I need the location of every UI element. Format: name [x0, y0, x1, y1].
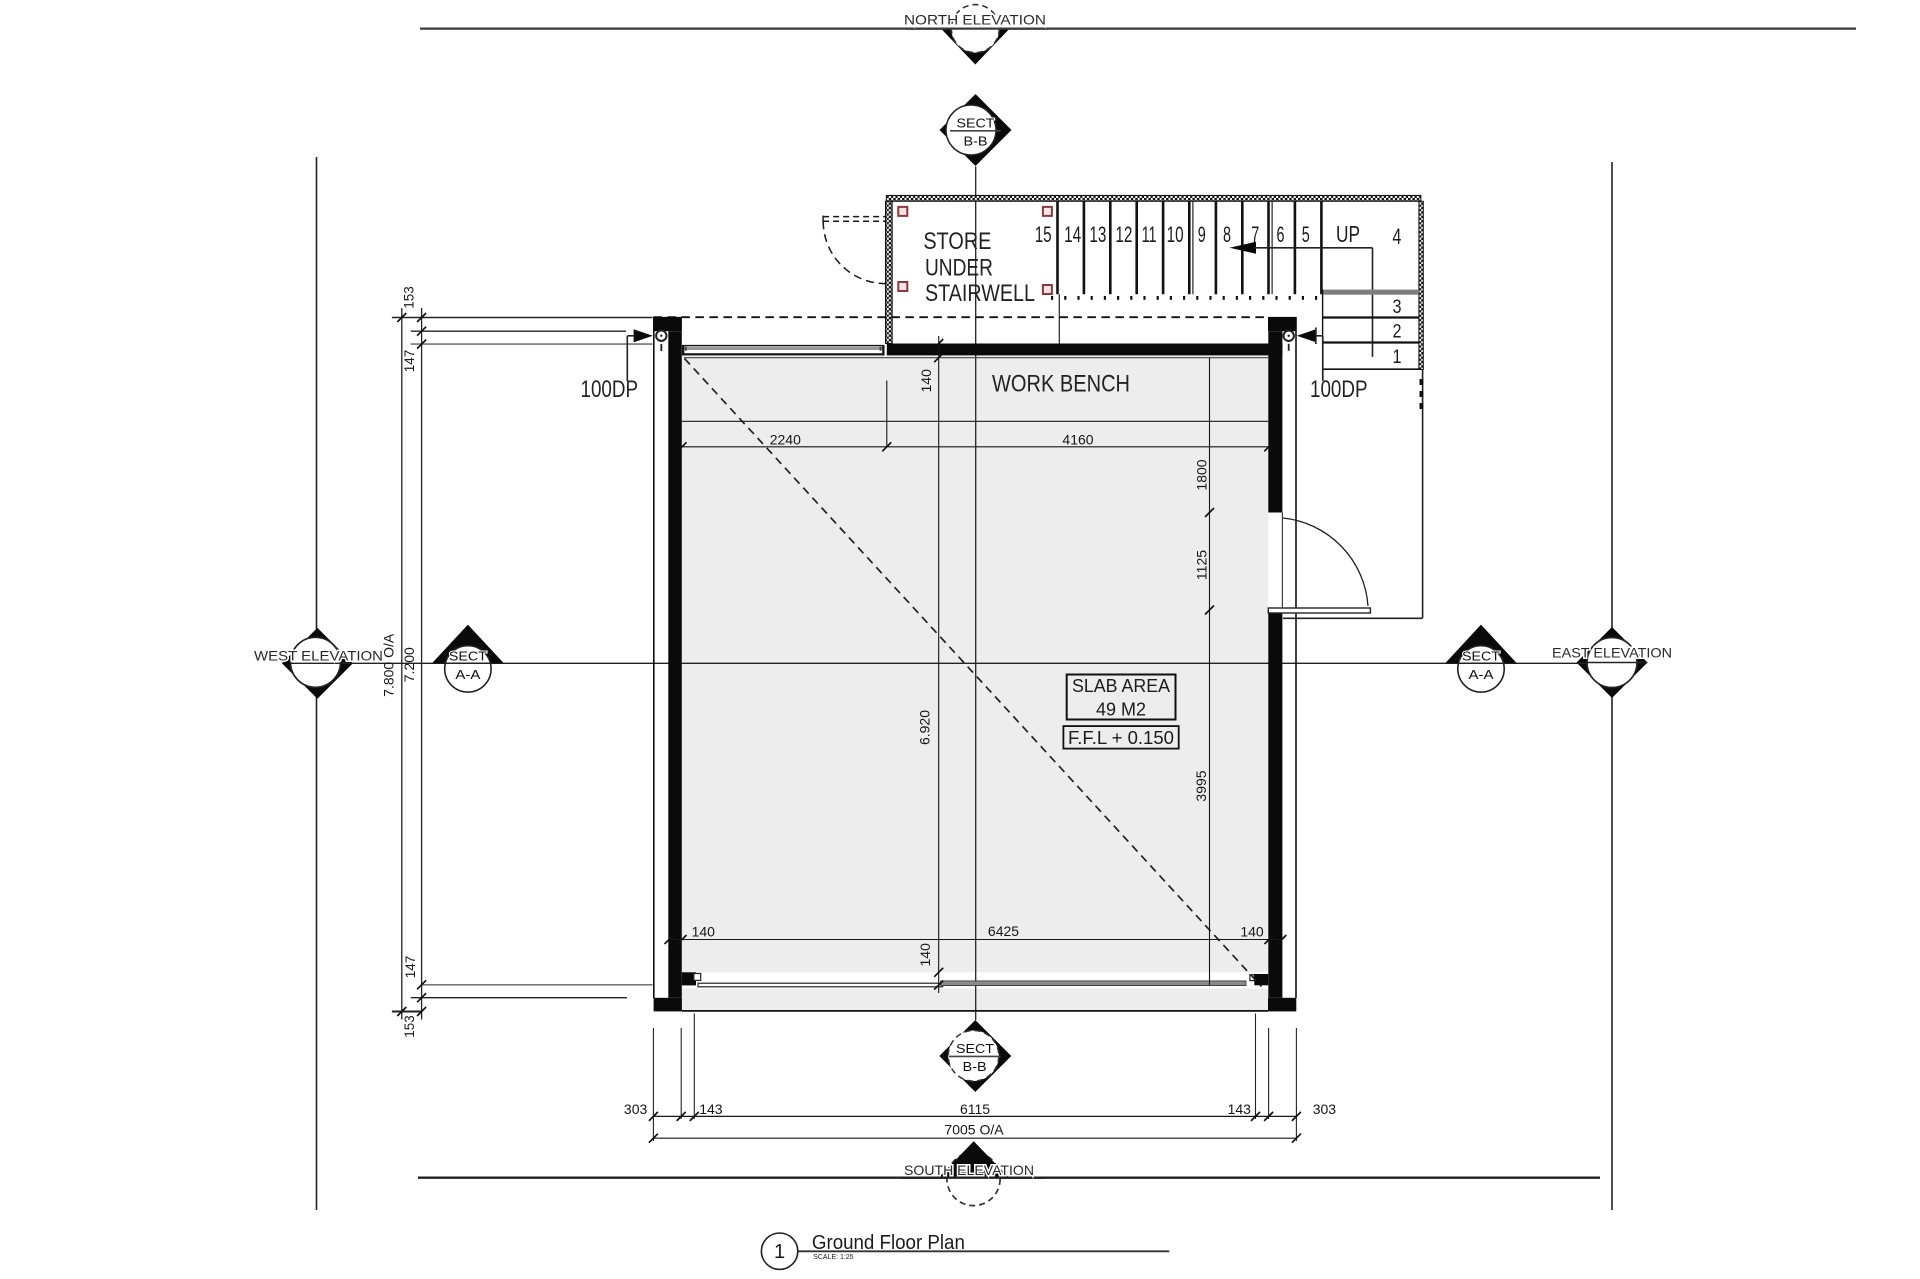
svg-text:F.F.L + 0.150: F.F.L + 0.150 — [1068, 728, 1174, 748]
svg-text:1: 1 — [774, 1241, 785, 1263]
svg-text:140: 140 — [917, 943, 933, 967]
svg-text:8: 8 — [1223, 222, 1231, 247]
svg-text:13: 13 — [1089, 222, 1106, 247]
svg-text:6115: 6115 — [960, 1101, 990, 1117]
svg-text:6425: 6425 — [988, 923, 1019, 939]
svg-text:SCALE: 1:25: SCALE: 1:25 — [813, 1254, 854, 1261]
svg-text:7.200: 7.200 — [401, 647, 417, 682]
svg-text:7.800 O/A: 7.800 O/A — [381, 633, 397, 697]
svg-text:100DP: 100DP — [581, 376, 639, 403]
svg-text:11: 11 — [1142, 222, 1157, 247]
svg-text:UP: UP — [1336, 221, 1360, 247]
svg-text:SLAB AREA: SLAB AREA — [1072, 676, 1170, 696]
svg-text:49 M2: 49 M2 — [1096, 699, 1146, 719]
svg-text:WEST ELEVATION: WEST ELEVATION — [254, 648, 383, 664]
svg-text:100DP: 100DP — [1310, 376, 1368, 403]
svg-text:A-A: A-A — [455, 667, 480, 682]
svg-text:10: 10 — [1167, 222, 1184, 247]
svg-text:EAST ELEVATION: EAST ELEVATION — [1552, 645, 1672, 661]
svg-text:140: 140 — [1240, 923, 1264, 939]
svg-text:3: 3 — [1393, 297, 1402, 318]
svg-text:147: 147 — [403, 956, 418, 979]
svg-text:4160: 4160 — [1062, 432, 1093, 448]
svg-text:14: 14 — [1064, 222, 1081, 247]
svg-text:SECT: SECT — [1462, 648, 1500, 663]
svg-text:STORE: STORE — [923, 228, 991, 255]
svg-text:140: 140 — [918, 369, 934, 393]
svg-text:1800: 1800 — [1194, 459, 1210, 490]
svg-text:SOUTH ELEVATION: SOUTH ELEVATION — [904, 1162, 1034, 1178]
svg-text:12: 12 — [1115, 222, 1132, 247]
svg-text:15: 15 — [1035, 222, 1052, 247]
svg-text:B-B: B-B — [964, 133, 988, 148]
svg-text:303: 303 — [1313, 1101, 1337, 1117]
svg-text:A-A: A-A — [1469, 667, 1494, 682]
svg-text:9: 9 — [1198, 222, 1206, 247]
svg-text:7005 O/A: 7005 O/A — [944, 1122, 1004, 1138]
svg-text:NORTH ELEVATION: NORTH ELEVATION — [904, 12, 1046, 28]
svg-text:1125: 1125 — [1194, 550, 1210, 580]
svg-text:6.920: 6.920 — [917, 710, 933, 745]
svg-text:147: 147 — [402, 350, 417, 373]
svg-text:143: 143 — [1228, 1101, 1252, 1117]
svg-text:6: 6 — [1277, 222, 1285, 247]
svg-text:STAIRWELL: STAIRWELL — [925, 280, 1035, 307]
svg-text:SECT: SECT — [956, 1041, 994, 1056]
svg-text:UNDER: UNDER — [925, 255, 993, 282]
svg-text:5: 5 — [1302, 222, 1310, 247]
svg-text:3995: 3995 — [1193, 770, 1209, 801]
svg-text:4: 4 — [1392, 224, 1401, 249]
svg-text:1: 1 — [1393, 347, 1402, 368]
svg-text:303: 303 — [624, 1101, 648, 1117]
svg-text:2240: 2240 — [770, 432, 801, 448]
svg-text:WORK BENCH: WORK BENCH — [992, 371, 1130, 398]
svg-text:143: 143 — [699, 1101, 723, 1117]
svg-text:153: 153 — [402, 1015, 417, 1038]
svg-text:2: 2 — [1393, 321, 1402, 342]
svg-text:140: 140 — [692, 923, 716, 939]
svg-text:SECT: SECT — [449, 648, 487, 663]
svg-text:SECT: SECT — [957, 115, 995, 130]
svg-text:153: 153 — [402, 286, 417, 309]
svg-text:B-B: B-B — [963, 1059, 987, 1074]
